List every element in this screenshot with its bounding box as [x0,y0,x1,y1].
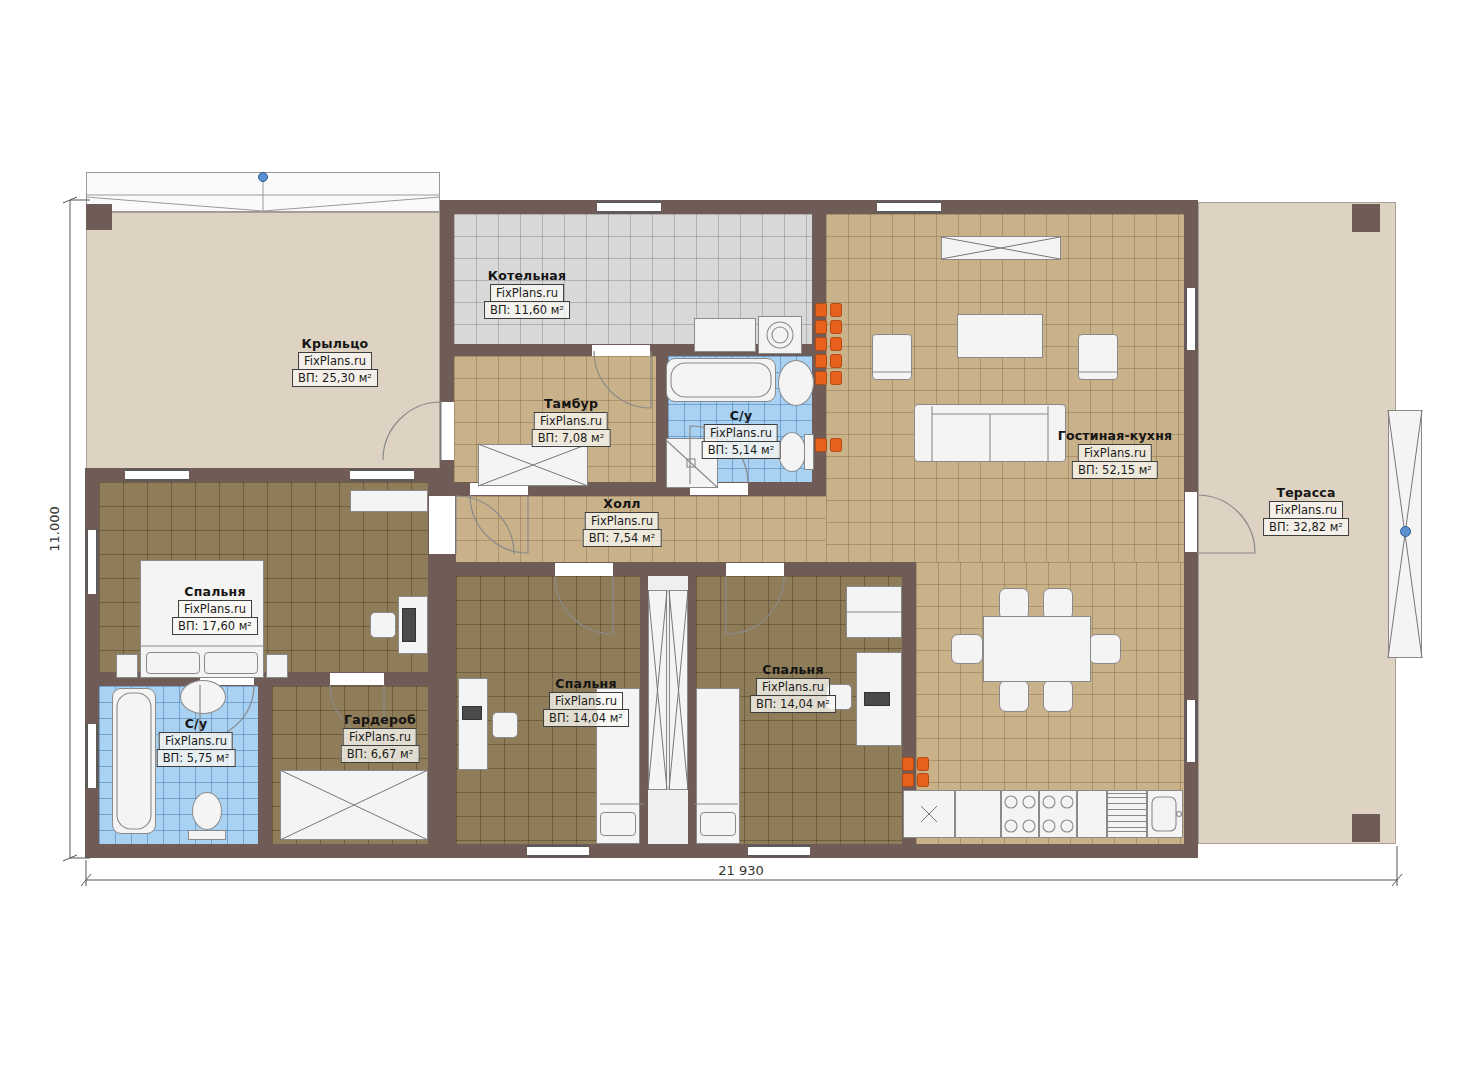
door-opening [1185,492,1197,552]
room-area: ВП: 17,60 м² [172,617,258,635]
heating-marker [902,757,929,771]
room-watermark: FixPlans.ru [343,728,417,746]
toilet [778,432,806,472]
dining-chair [1089,634,1121,664]
room-area: ВП: 7,08 м² [532,429,611,447]
washbasin [180,680,226,714]
room-name: Спальня [762,662,823,677]
laptop [462,706,482,720]
floor-plan: 21 930 11.000 Котельная FixPlans.ru ВП: … [0,0,1474,1080]
pillow [700,812,736,836]
window [125,469,189,481]
door-opening [429,496,455,554]
heating-marker [815,354,842,368]
door-opening [726,563,784,576]
door-opening [330,673,384,685]
room-label-hall: Холл FixPlans.ru ВП: 7,54 м² [583,496,662,547]
room-area: ВП: 14,04 м² [750,695,836,713]
dishwasher [1107,790,1147,838]
room-name: Тамбур [544,396,598,411]
room-watermark: FixPlans.ru [159,732,233,750]
room-name: С/у [730,408,753,423]
room-watermark: FixPlans.ru [1078,444,1152,462]
door-opening [592,345,650,356]
room-name: Терасса [1276,485,1335,500]
kitchen-sink [1147,790,1183,838]
window [1185,700,1197,762]
stove [1039,790,1077,838]
nightstand [116,654,138,678]
room-label-bedroom-mid: Спальня FixPlans.ru ВП: 14,04 м² [543,676,629,727]
wardrobe-cabinet [280,770,428,840]
armchair [872,334,912,380]
washing-machine [758,316,802,354]
pillow [204,652,258,674]
living-floor-upper [826,214,1184,562]
dimension-width: 21 930 [718,863,764,878]
bathtub [666,358,776,402]
room-name: Котельная [488,268,567,283]
washbasin [778,360,814,406]
heating-marker [815,371,842,385]
kitchen-cabinet [955,790,1001,838]
nightstand [266,654,288,678]
porch-canopy [86,172,440,212]
heating-marker [902,773,929,787]
room-watermark: FixPlans.ru [178,600,252,618]
dimension-height: 11.000 [47,506,62,552]
room-area: ВП: 5,75 м² [157,749,236,767]
desk [458,678,488,770]
porch-slab [86,212,440,470]
wall-bottom [85,844,1198,858]
window [877,201,941,213]
stove [1001,790,1039,838]
room-area: ВП: 11,60 м² [484,301,570,319]
window [1185,288,1197,350]
terrace-column-bottom [1352,814,1380,842]
dining-chair [1043,680,1073,712]
room-name: Гостиная-кухня [1058,428,1172,443]
heating-marker [815,438,842,452]
tv-stand [941,236,1061,260]
room-watermark: FixPlans.ru [534,412,608,430]
room-label-tambour: Тамбур FixPlans.ru ВП: 7,08 м² [532,396,611,447]
bathtub [112,688,156,834]
dining-chair [999,680,1029,712]
heating-marker [815,320,842,334]
room-watermark: FixPlans.ru [585,512,659,530]
desk-chair [370,612,396,638]
room-watermark: FixPlans.ru [549,692,623,710]
wall-hall-bottom [428,562,916,576]
door-opening [555,563,613,576]
dining-chair [951,634,983,664]
room-name: Крыльцо [302,336,369,351]
room-area: ВП: 14,04 м² [543,709,629,727]
coffee-table [957,314,1043,358]
pillow [600,812,636,836]
dining-table [983,616,1091,682]
room-label-bath-top: С/у FixPlans.ru ВП: 5,14 м² [702,408,781,459]
room-name: С/у [185,716,208,731]
window [86,530,98,594]
room-area: ВП: 32,82 м² [1263,518,1349,536]
toilet-tank [188,830,226,840]
room-name: Холл [603,496,640,511]
dresser [846,586,902,638]
window [86,724,98,788]
room-area: ВП: 52,15 м² [1072,461,1158,479]
window [597,201,661,213]
room-label-bedroom-right: Спальня FixPlans.ru ВП: 14,04 м² [750,662,836,713]
window [350,469,414,481]
room-label-boiler: Котельная FixPlans.ru ВП: 11,60 м² [484,268,570,319]
porch-column [86,204,112,230]
room-area: ВП: 7,54 м² [583,529,662,547]
desk-chair [492,712,518,738]
room-label-wardrobe: Гардероб FixPlans.ru ВП: 6,67 м² [341,712,420,763]
heating-marker [815,337,842,351]
room-watermark: FixPlans.ru [298,352,372,370]
dresser [350,490,428,512]
room-name: Спальня [184,584,245,599]
window [527,845,589,857]
room-watermark: FixPlans.ru [490,284,564,302]
closet [648,590,667,790]
wall-niche-right [688,576,696,844]
toilet-tank [804,434,814,470]
room-name: Гардероб [344,712,416,727]
laptop [864,692,890,706]
tv-on-desk [402,608,416,642]
room-watermark: FixPlans.ru [756,678,830,696]
heating-marker [815,303,842,317]
room-label-terrace: Терасса FixPlans.ru ВП: 32,82 м² [1263,485,1349,536]
wall-left-lower [85,468,99,858]
room-area: ВП: 5,14 м² [702,441,781,459]
window [748,845,810,857]
room-area: ВП: 25,30 м² [292,369,378,387]
survey-marker [1400,526,1411,537]
pillow [146,652,200,674]
room-watermark: FixPlans.ru [704,424,778,442]
room-area: ВП: 6,67 м² [341,745,420,763]
room-label-living: Гостиная-кухня FixPlans.ru ВП: 52,15 м² [1058,428,1172,479]
toilet [192,792,222,830]
kitchen-cabinet [903,790,955,838]
wall-niche-left [640,576,648,844]
armchair [1078,334,1118,380]
room-label-porch: Крыльцо FixPlans.ru ВП: 25,30 м² [292,336,378,387]
room-name: Спальня [555,676,616,691]
sofa [914,404,1066,462]
closet [669,590,688,790]
wall-bath-wardrobe [258,686,272,844]
kitchen-cabinet [1077,790,1107,838]
terrace-column-top [1352,204,1380,232]
boiler-counter [694,318,756,352]
room-watermark: FixPlans.ru [1269,501,1343,519]
wardrobe-cabinet [478,444,588,486]
door-opening [441,402,454,460]
room-label-bath-bottom: С/у FixPlans.ru ВП: 5,75 м² [157,716,236,767]
room-label-bedroom-left: Спальня FixPlans.ru ВП: 17,60 м² [172,584,258,635]
